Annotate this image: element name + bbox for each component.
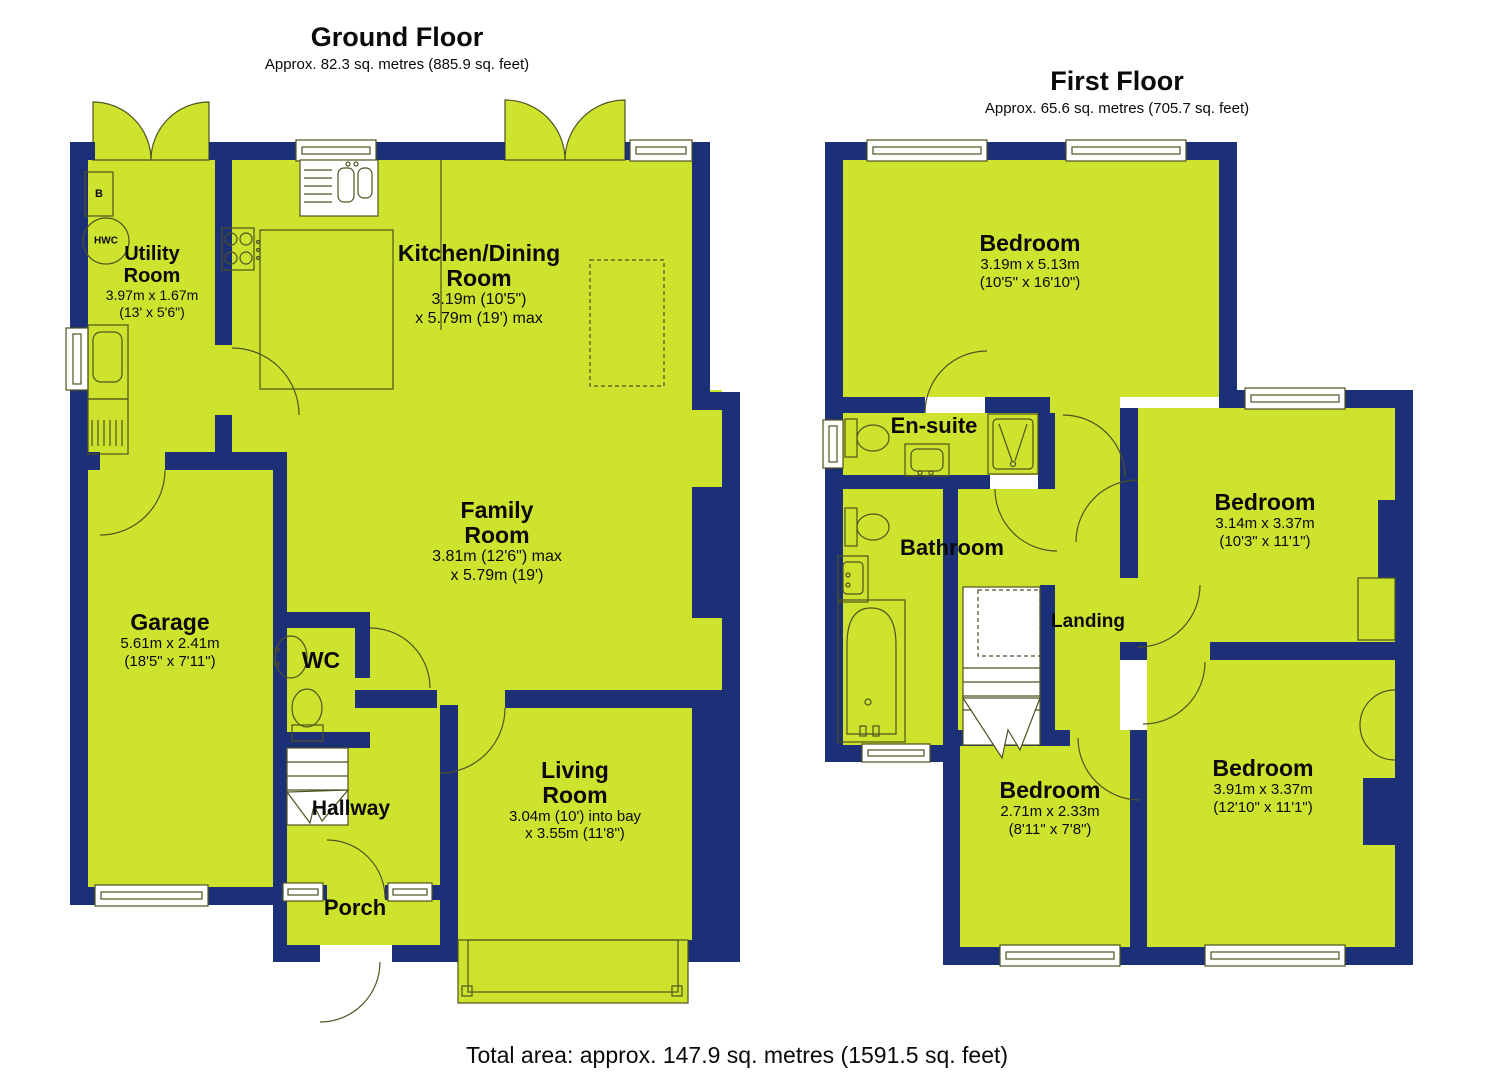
window-icon <box>1205 945 1345 966</box>
first-floor-subtitle: Approx. 65.6 sq. metres (705.7 sq. feet) <box>985 100 1249 117</box>
window-icon <box>1000 945 1120 966</box>
window-icon <box>95 885 208 906</box>
room-label-ensuite: En-suite <box>891 414 978 438</box>
hwc-label: HWC <box>94 236 118 247</box>
window-icon <box>630 140 692 161</box>
room-label-landing: Landing <box>1051 612 1125 633</box>
ground-floor-subtitle: Approx. 82.3 sq. metres (885.9 sq. feet) <box>265 56 529 73</box>
window-icon <box>1245 388 1345 409</box>
room-label-porch: Porch <box>324 896 386 920</box>
window-icon <box>1066 140 1186 161</box>
window-icon <box>66 328 88 390</box>
floorplan-page: { "colors": { "room_fill": "#cde32e", "w… <box>0 0 1485 1080</box>
room-label-bedroom4: Bedroom 3.91m x 3.37m (12'10" x 11'1") <box>1213 756 1314 816</box>
first-floor-title: First Floor <box>985 66 1249 97</box>
kitchen-sink-icon <box>300 160 378 216</box>
window-icon <box>296 140 376 161</box>
boiler-label: B <box>95 188 103 200</box>
room-label-garage: Garage 5.61m x 2.41m (18'5" x 7'11") <box>120 610 219 670</box>
window-icon <box>862 744 930 762</box>
ground-floor-title: Ground Floor <box>265 22 529 53</box>
window-icon <box>283 883 323 901</box>
window-icon <box>388 883 432 901</box>
room-label-kitchen-dining: Kitchen/Dining Room 3.19m (10'5") x 5.79… <box>384 241 574 328</box>
room-label-hallway: Hallway <box>312 798 390 821</box>
room-label-bedroom1: Bedroom 3.19m x 5.13m (10'5" x 16'10") <box>980 231 1081 291</box>
bay-window-icon <box>458 940 688 1003</box>
room-label-wc: WC <box>302 648 340 673</box>
window-icon <box>823 420 843 468</box>
room-label-family: Family Room 3.81m (12'6") max x 5.79m (1… <box>432 498 562 585</box>
room-label-bathroom: Bathroom <box>900 536 1004 560</box>
first-stairs-icon <box>963 587 1040 758</box>
room-label-living: Living Room 3.04m (10') into bay x 3.55m… <box>509 758 641 843</box>
room-label-bedroom2: Bedroom 3.14m x 3.37m (10'3" x 11'1") <box>1215 490 1316 550</box>
window-icon <box>867 140 987 161</box>
ground-floor-header: Ground Floor Approx. 82.3 sq. metres (88… <box>265 22 529 73</box>
room-label-bedroom3: Bedroom 2.71m x 2.33m (8'11" x 7'8") <box>1000 778 1101 838</box>
total-area-text: Total area: approx. 147.9 sq. metres (15… <box>466 1042 1008 1069</box>
room-label-utility: Utility Room 3.97m x 1.67m (13' x 5'6") <box>106 244 199 320</box>
first-floor-header: First Floor Approx. 65.6 sq. metres (705… <box>985 66 1249 117</box>
floor-plan-ground <box>66 100 740 1022</box>
